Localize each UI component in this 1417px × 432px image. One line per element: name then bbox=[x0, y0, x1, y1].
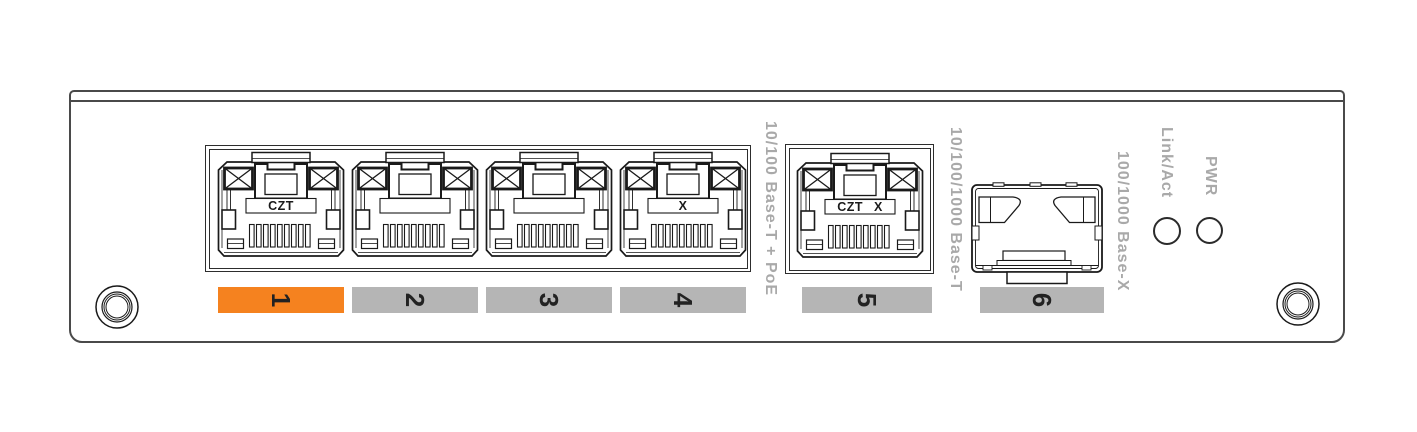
link-act-led bbox=[1153, 217, 1181, 245]
port-2-number: 2 bbox=[402, 293, 428, 307]
port-5-rj45-jack: CZT X bbox=[794, 152, 926, 262]
port-5-type-label: 10/100/1000 Base-T bbox=[947, 127, 963, 292]
port-1-number-bar: 1 bbox=[218, 287, 344, 313]
port-6-number-bar: 6 bbox=[980, 287, 1104, 313]
pwr-led-label: PWR bbox=[1202, 156, 1218, 196]
port-3-number-bar: 3 bbox=[486, 287, 612, 313]
panel-top-edge-line bbox=[71, 100, 1343, 102]
port-5-number: 5 bbox=[854, 293, 880, 307]
ports-1-4-type-label: 10/100 Base-T + PoE bbox=[762, 121, 778, 296]
port-4-number-bar: 4 bbox=[620, 287, 746, 313]
port-1-number: 1 bbox=[268, 293, 294, 307]
port-3-rj45-jack bbox=[483, 151, 615, 261]
sfp-latch-handle bbox=[1007, 272, 1067, 284]
port-1-rj45-jack: CZT bbox=[215, 151, 347, 261]
port-5-jack-label: CZT X bbox=[837, 200, 883, 214]
port-6-sfp-slot bbox=[970, 182, 1104, 286]
rj45-jack-graphic bbox=[353, 153, 478, 257]
port-1-jack-label: CZT bbox=[268, 199, 294, 213]
port-4-rj45-jack: X bbox=[617, 151, 749, 261]
link-act-led-label: Link/Act bbox=[1158, 127, 1174, 198]
rj45-jack-graphic bbox=[487, 153, 612, 257]
mounting-screw-left-icon bbox=[94, 284, 140, 330]
port-6-type-label: 100/1000 Base-X bbox=[1114, 151, 1130, 291]
pwr-led bbox=[1196, 217, 1223, 244]
port-3-number: 3 bbox=[536, 293, 562, 307]
port-4-jack-label: X bbox=[679, 199, 688, 213]
port-6-number: 6 bbox=[1029, 293, 1055, 307]
port-2-rj45-jack bbox=[349, 151, 481, 261]
mounting-screw-right-icon bbox=[1275, 281, 1321, 327]
port-5-number-bar: 5 bbox=[802, 287, 932, 313]
port-4-number: 4 bbox=[670, 293, 696, 307]
port-2-number-bar: 2 bbox=[352, 287, 478, 313]
faceplate-diagram: CZT X CZT X bbox=[0, 0, 1417, 432]
